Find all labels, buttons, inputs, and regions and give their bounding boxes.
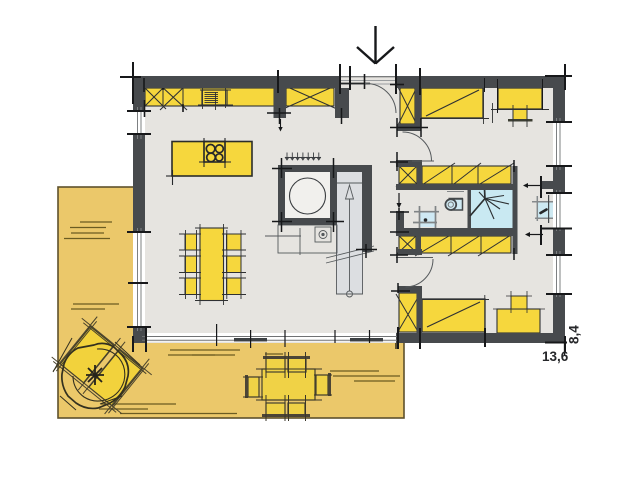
svg-text:8,4: 8,4 <box>567 325 582 344</box>
svg-text:13,6: 13,6 <box>542 349 569 364</box>
